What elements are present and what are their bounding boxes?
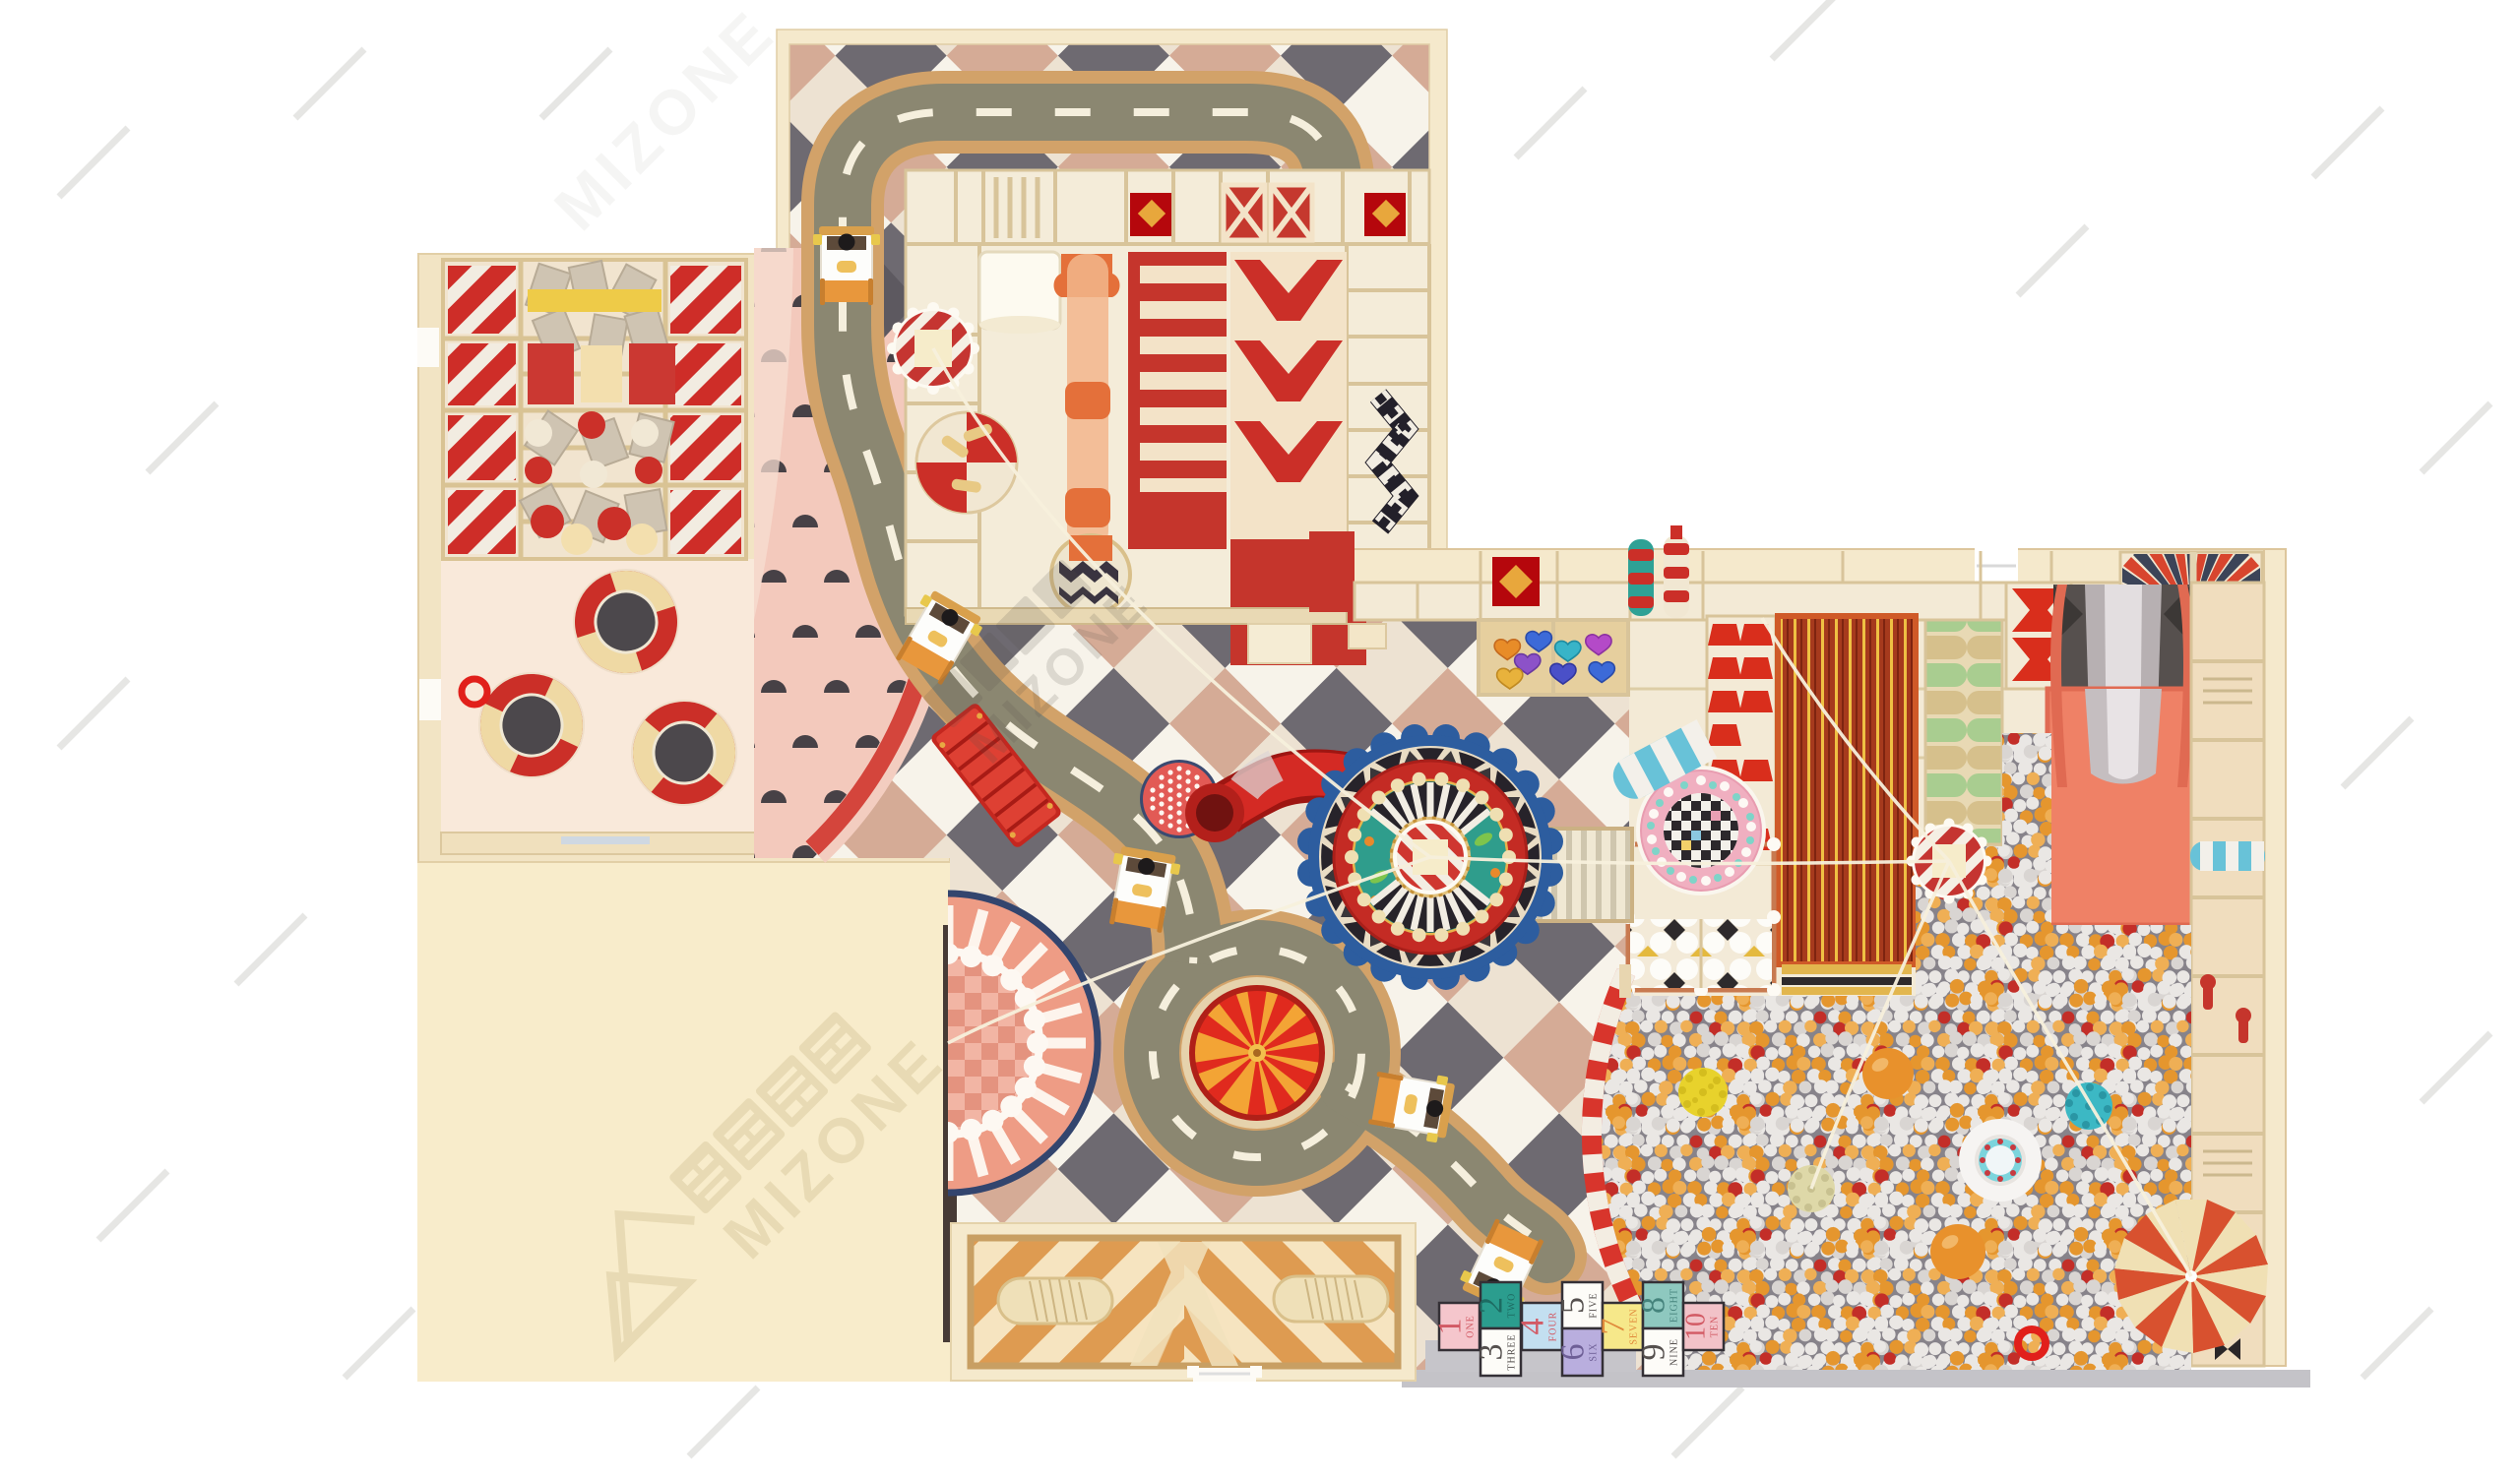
svg-text:7: 7 <box>1596 1319 1632 1335</box>
svg-text:8: 8 <box>1636 1297 1672 1314</box>
svg-text:THREE: THREE <box>1507 1333 1518 1370</box>
svg-text:5: 5 <box>1555 1297 1592 1314</box>
svg-text:4: 4 <box>1515 1319 1551 1335</box>
svg-text:TWO: TWO <box>1507 1293 1518 1319</box>
svg-text:6: 6 <box>1555 1344 1592 1361</box>
svg-text:NINE: NINE <box>1669 1338 1680 1366</box>
svg-text:2: 2 <box>1474 1297 1510 1314</box>
svg-text:TEN: TEN <box>1710 1316 1721 1337</box>
svg-text:1: 1 <box>1432 1319 1469 1335</box>
svg-text:10: 10 <box>1681 1313 1712 1340</box>
svg-text:EIGHT: EIGHT <box>1669 1288 1680 1323</box>
svg-text:FIVE: FIVE <box>1589 1292 1600 1318</box>
svg-text:FOUR: FOUR <box>1548 1312 1559 1342</box>
svg-text:9: 9 <box>1636 1344 1672 1361</box>
svg-text:SIX: SIX <box>1589 1342 1600 1361</box>
svg-text:3: 3 <box>1474 1344 1510 1361</box>
svg-text:ONE: ONE <box>1466 1315 1477 1338</box>
